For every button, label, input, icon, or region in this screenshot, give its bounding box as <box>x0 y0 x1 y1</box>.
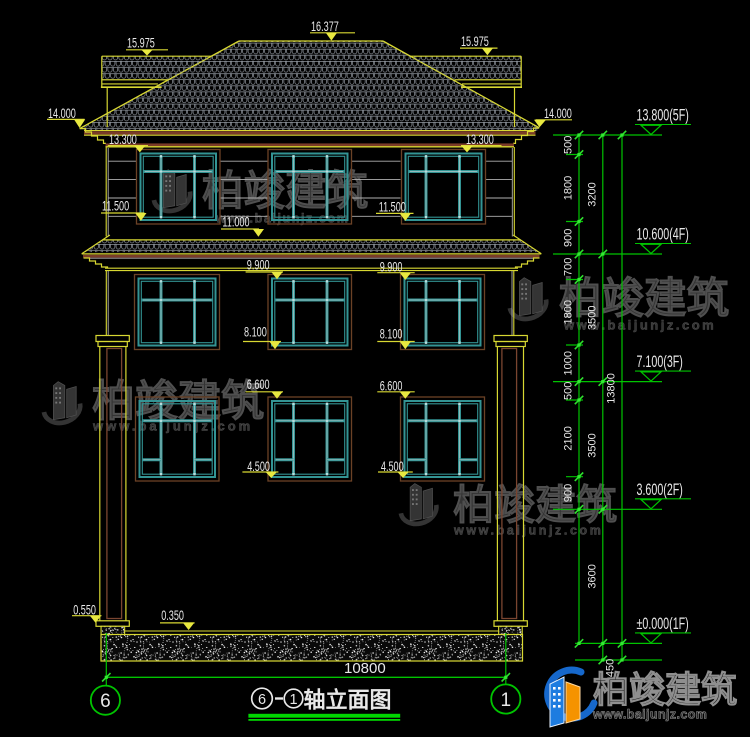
svg-text:900: 900 <box>563 484 575 502</box>
svg-text:11.000: 11.000 <box>222 214 249 231</box>
svg-text:9.900: 9.900 <box>247 256 270 273</box>
svg-text:3500: 3500 <box>587 306 599 330</box>
svg-text:8.100: 8.100 <box>380 325 403 342</box>
svg-text:15.975: 15.975 <box>461 33 489 50</box>
svg-text:16.377: 16.377 <box>311 18 339 35</box>
svg-text:8.100: 8.100 <box>244 323 267 340</box>
svg-text:柏竣建筑: 柏竣建筑 <box>593 669 737 710</box>
svg-text:3500: 3500 <box>587 433 599 457</box>
svg-text:500: 500 <box>563 382 575 400</box>
svg-text:11.500: 11.500 <box>379 198 406 215</box>
svg-text:7.100(3F): 7.100(3F) <box>637 353 683 372</box>
svg-text:500: 500 <box>563 136 575 154</box>
svg-text:6.600: 6.600 <box>247 376 270 393</box>
svg-text:11.500: 11.500 <box>102 197 129 214</box>
svg-text:13.800(5F): 13.800(5F) <box>637 106 689 125</box>
svg-text:1800: 1800 <box>563 300 575 324</box>
svg-text:柏竣建筑: 柏竣建筑 <box>453 482 617 528</box>
svg-text:15.975: 15.975 <box>127 34 155 51</box>
svg-text:14.000: 14.000 <box>544 105 572 122</box>
svg-text:900: 900 <box>563 229 575 247</box>
svg-text:±0.000(1F): ±0.000(1F) <box>637 615 689 634</box>
svg-text:www.baijunjz.com: www.baijunjz.com <box>592 708 707 722</box>
svg-text:柏竣建筑: 柏竣建筑 <box>202 167 369 214</box>
svg-text:1800: 1800 <box>563 176 575 200</box>
svg-text:1: 1 <box>289 692 297 708</box>
svg-text:10800: 10800 <box>344 660 386 677</box>
svg-text:柏竣建筑: 柏竣建筑 <box>559 276 729 323</box>
svg-text:1000: 1000 <box>563 351 575 375</box>
svg-text:0.350: 0.350 <box>161 607 184 624</box>
svg-text:3600: 3600 <box>587 564 599 588</box>
svg-text:1: 1 <box>501 690 512 711</box>
svg-text:13800: 13800 <box>606 373 618 404</box>
svg-text:3200: 3200 <box>587 182 599 206</box>
svg-text:6: 6 <box>100 691 111 712</box>
svg-text:www.baijunjz.com: www.baijunjz.com <box>453 524 603 538</box>
svg-text:3.600(2F): 3.600(2F) <box>637 480 683 499</box>
svg-text:2100: 2100 <box>563 426 575 450</box>
svg-text:6: 6 <box>258 692 266 708</box>
svg-text:轴立面图: 轴立面图 <box>304 688 392 713</box>
svg-text:10.600(4F): 10.600(4F) <box>637 225 689 244</box>
svg-text:700: 700 <box>563 258 575 276</box>
